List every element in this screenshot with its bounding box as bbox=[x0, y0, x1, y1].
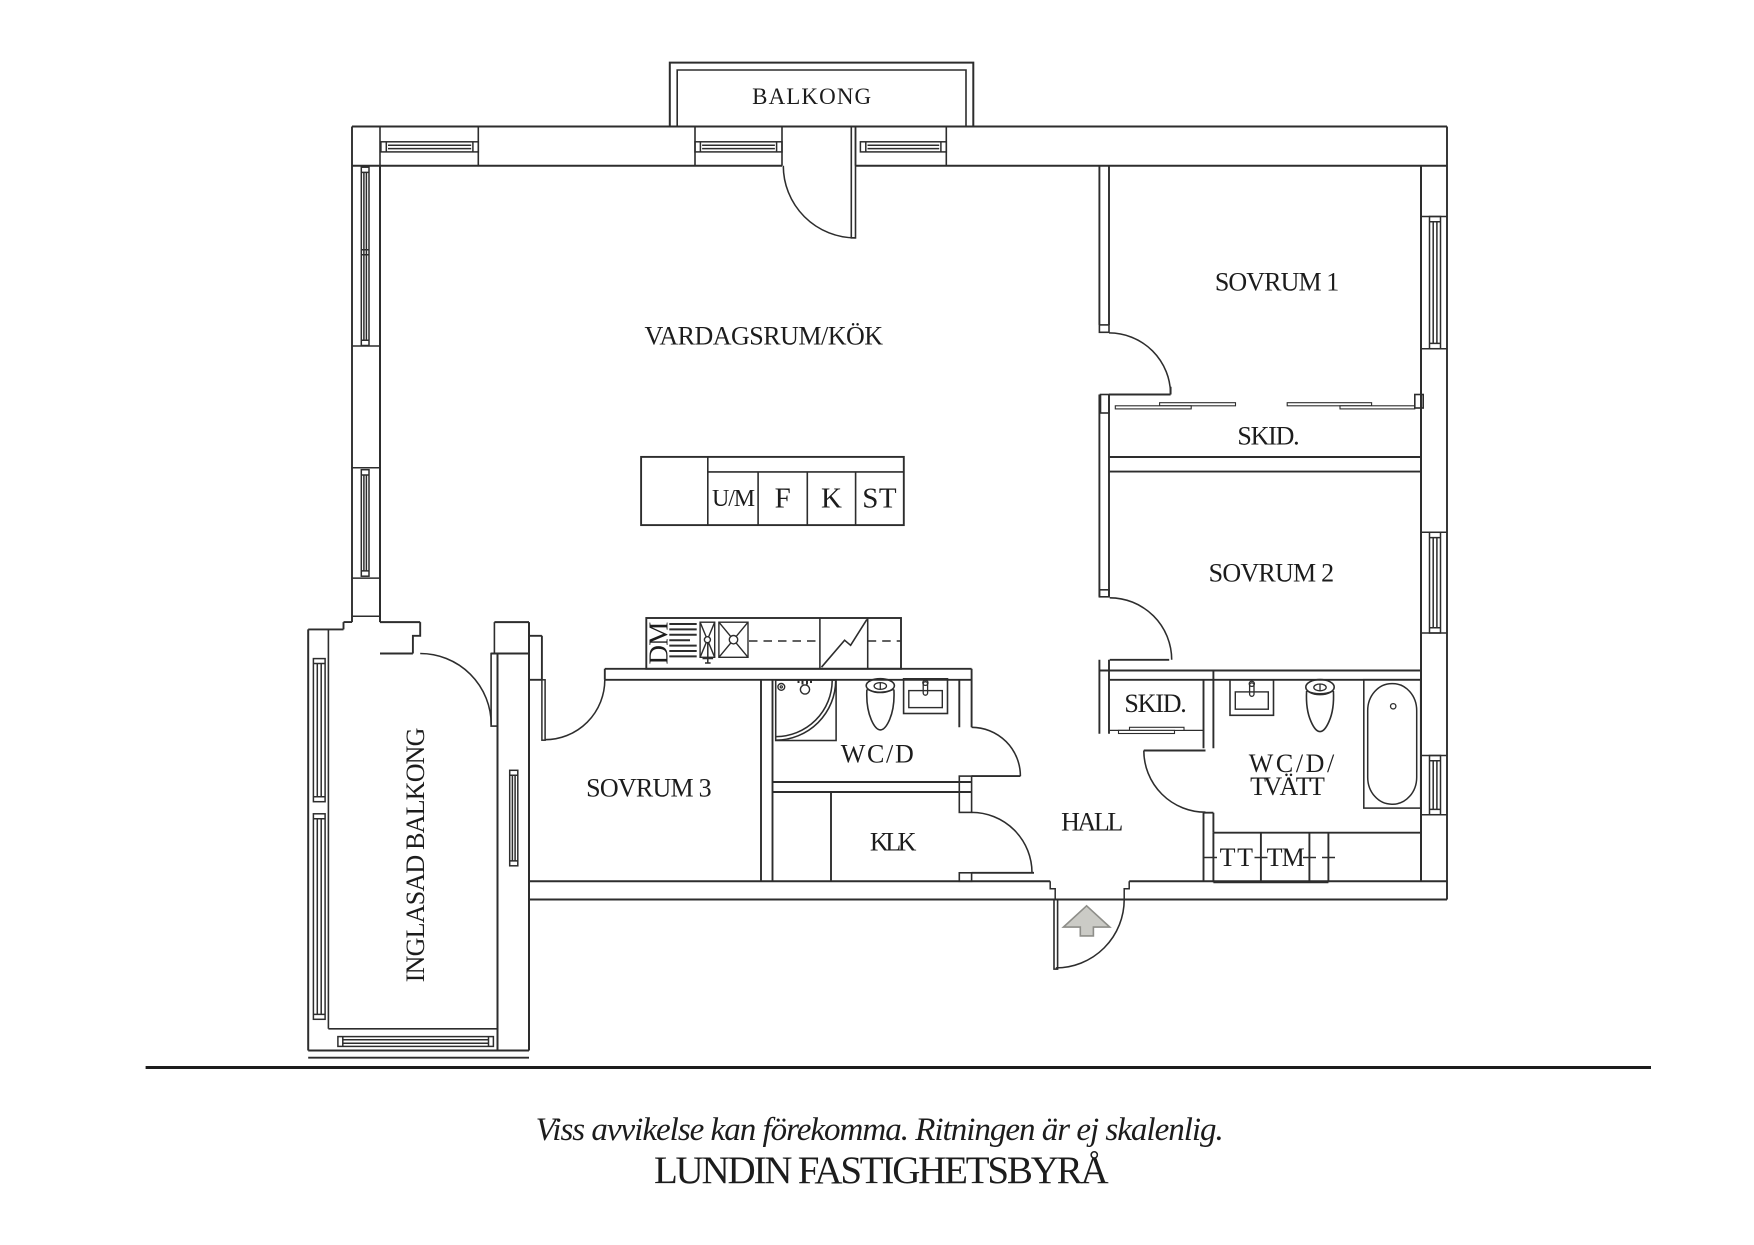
svg-text:INGLASAD BALKONG: INGLASAD BALKONG bbox=[401, 728, 430, 982]
svg-text:ST: ST bbox=[862, 483, 897, 515]
svg-text:VARDAGSRUM/KÖK: VARDAGSRUM/KÖK bbox=[644, 322, 883, 351]
svg-text:SOVRUM 3: SOVRUM 3 bbox=[586, 774, 711, 803]
svg-text:SOVRUM 1: SOVRUM 1 bbox=[1215, 268, 1339, 297]
svg-text:TM: TM bbox=[1267, 843, 1305, 872]
svg-text:SKID.: SKID. bbox=[1124, 689, 1185, 718]
svg-text:DM: DM bbox=[644, 622, 674, 665]
svg-text:TT: TT bbox=[1220, 843, 1255, 872]
svg-text:U/M: U/M bbox=[712, 486, 755, 512]
svg-text:KLK: KLK bbox=[870, 827, 917, 856]
svg-text:TVÄTT: TVÄTT bbox=[1250, 772, 1325, 801]
svg-text:BALKONG: BALKONG bbox=[752, 84, 872, 109]
svg-text:K: K bbox=[821, 483, 842, 515]
svg-text:SOVRUM 2: SOVRUM 2 bbox=[1209, 559, 1334, 588]
svg-text:WC/D: WC/D bbox=[841, 740, 916, 769]
svg-text:SKID.: SKID. bbox=[1237, 422, 1298, 451]
svg-text:HALL: HALL bbox=[1061, 808, 1122, 837]
svg-text:LUNDIN FASTIGHETSBYRÅ: LUNDIN FASTIGHETSBYRÅ bbox=[654, 1149, 1109, 1192]
svg-text:Viss avvikelse kan förekomma.: Viss avvikelse kan förekomma. Ritningen … bbox=[536, 1112, 1223, 1148]
svg-text:F: F bbox=[775, 483, 791, 515]
